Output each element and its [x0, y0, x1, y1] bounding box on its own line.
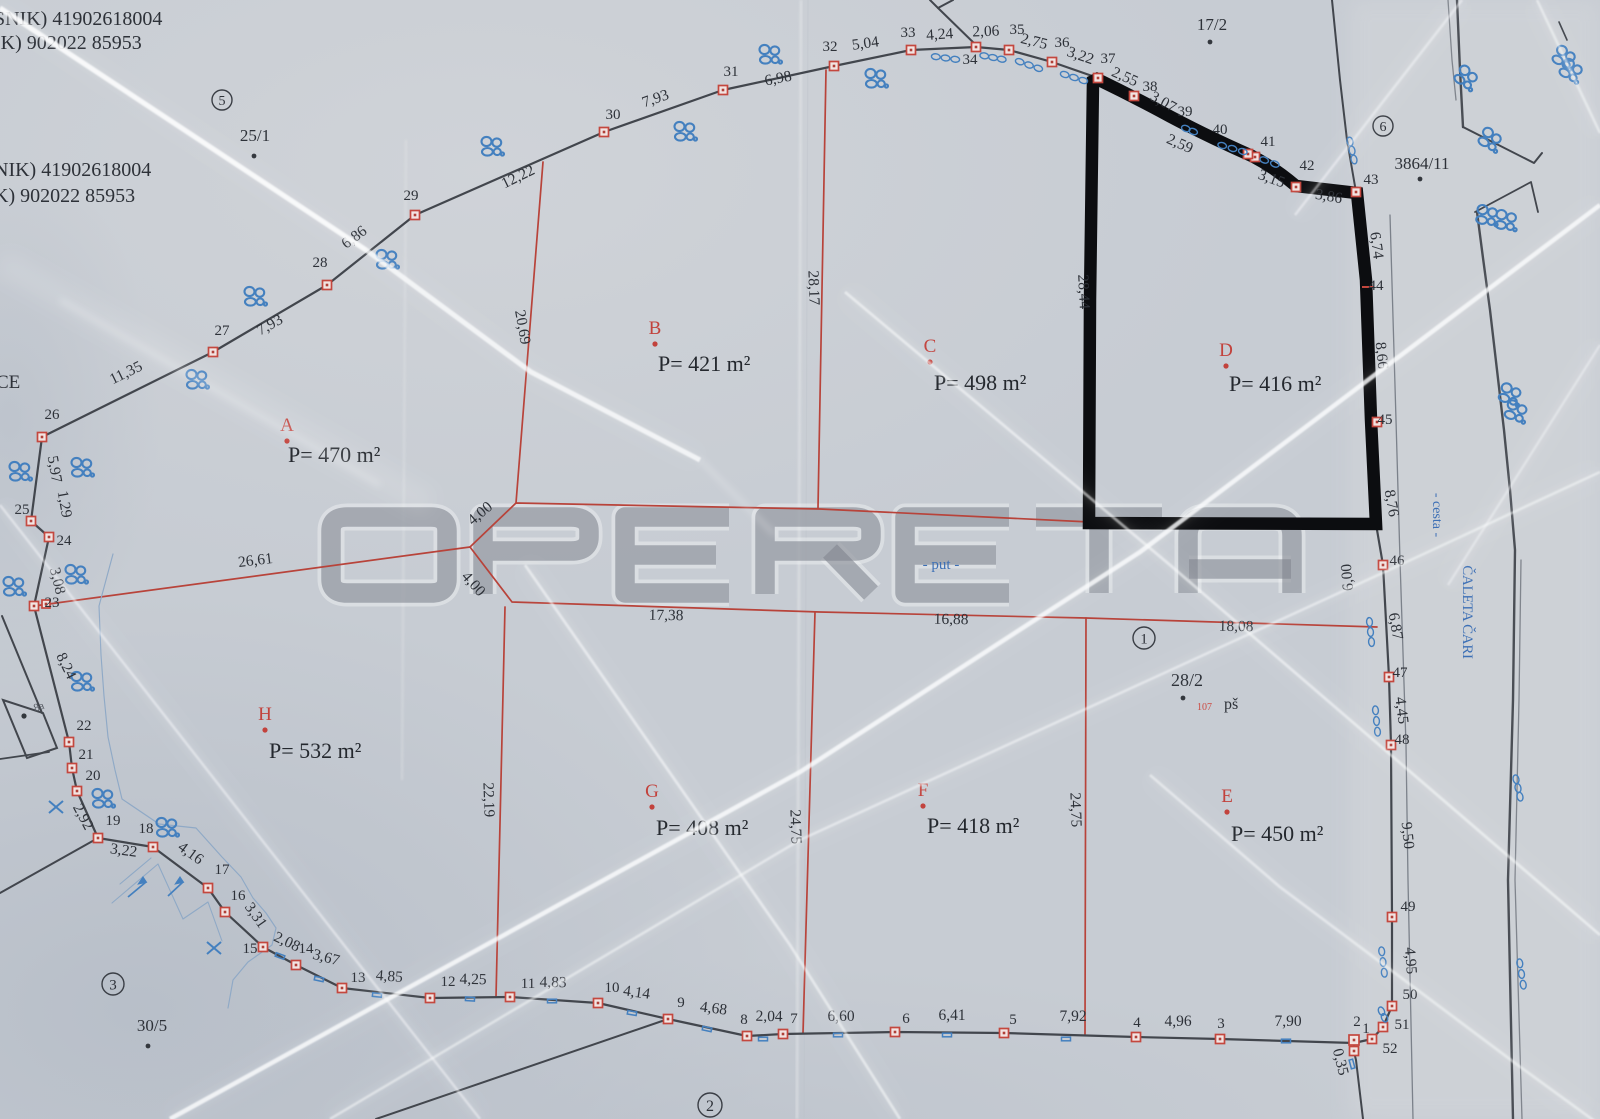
- svg-text:B: B: [649, 318, 662, 339]
- svg-text:28,44: 28,44: [1074, 274, 1093, 310]
- svg-text:23: 23: [45, 595, 60, 611]
- svg-text:1: 1: [1362, 1021, 1370, 1037]
- svg-text:4: 4: [1133, 1015, 1141, 1031]
- svg-text:G: G: [645, 781, 659, 802]
- svg-text:P= 418 m²: P= 418 m²: [927, 813, 1020, 838]
- svg-text:49: 49: [1401, 899, 1416, 915]
- svg-text:P= 532 m²: P= 532 m²: [269, 738, 362, 763]
- svg-text:28,17: 28,17: [804, 270, 822, 306]
- svg-text:21: 21: [79, 747, 94, 763]
- svg-text:1: 1: [1140, 631, 1148, 647]
- svg-text:6,41: 6,41: [938, 1007, 965, 1024]
- svg-text:43: 43: [1364, 172, 1379, 188]
- svg-text:32: 32: [823, 39, 838, 55]
- svg-text:15: 15: [243, 941, 258, 957]
- svg-text:CE: CE: [0, 372, 20, 393]
- svg-text:19: 19: [106, 813, 121, 829]
- svg-text:4,45: 4,45: [1391, 696, 1411, 725]
- svg-text:34: 34: [963, 52, 979, 68]
- svg-text:27: 27: [215, 323, 231, 339]
- svg-text:22: 22: [77, 718, 92, 734]
- svg-text:3: 3: [109, 977, 117, 993]
- svg-text:2,06: 2,06: [972, 23, 1000, 41]
- svg-text:29: 29: [404, 188, 419, 204]
- svg-text:9: 9: [677, 995, 685, 1011]
- svg-text:17,38: 17,38: [648, 607, 683, 625]
- svg-text:4,24: 4,24: [926, 25, 954, 44]
- svg-text:44: 44: [1369, 278, 1385, 294]
- svg-text:51: 51: [1395, 1017, 1410, 1033]
- svg-text:8: 8: [740, 1012, 748, 1028]
- svg-text:2: 2: [706, 1098, 714, 1115]
- svg-text:22,19: 22,19: [479, 782, 497, 818]
- svg-text:7: 7: [790, 1011, 798, 1027]
- svg-text:20: 20: [86, 768, 101, 784]
- svg-text:28: 28: [313, 255, 328, 271]
- svg-text:4,96: 4,96: [1164, 1013, 1191, 1030]
- svg-text:18: 18: [139, 821, 154, 837]
- svg-text:7,90: 7,90: [1274, 1013, 1301, 1030]
- svg-text:7,92: 7,92: [1059, 1008, 1086, 1025]
- svg-text:16: 16: [231, 888, 247, 904]
- svg-text:17: 17: [215, 862, 231, 878]
- svg-text:24: 24: [57, 533, 73, 549]
- svg-text:30: 30: [606, 107, 621, 123]
- svg-text:33: 33: [901, 25, 916, 41]
- svg-text:- put -: - put -: [923, 557, 960, 573]
- svg-text:39: 39: [1178, 104, 1193, 120]
- svg-text:4,68: 4,68: [699, 998, 728, 1018]
- svg-text:16,88: 16,88: [933, 611, 968, 629]
- svg-text:E: E: [1221, 786, 1233, 807]
- svg-text:5: 5: [219, 94, 226, 109]
- svg-text:D: D: [1219, 340, 1233, 361]
- svg-text:24,75: 24,75: [1066, 792, 1084, 828]
- svg-text:2: 2: [1353, 1014, 1361, 1030]
- svg-text:52: 52: [1383, 1041, 1398, 1057]
- svg-text:P= 416 m²: P= 416 m²: [1229, 371, 1322, 396]
- svg-text:5: 5: [1009, 1012, 1017, 1028]
- svg-text:30/5: 30/5: [137, 1016, 167, 1035]
- svg-text:31: 31: [724, 64, 739, 80]
- svg-text:107: 107: [1197, 702, 1212, 713]
- svg-text:H: H: [258, 704, 272, 725]
- svg-text:- cesta -: - cesta -: [1429, 493, 1444, 538]
- svg-text:NIK) 41902618004: NIK) 41902618004: [0, 159, 151, 181]
- svg-text:K) 902022 85953: K) 902022 85953: [0, 185, 135, 207]
- svg-text:P= 421 m²: P= 421 m²: [658, 351, 751, 376]
- svg-text:4,25: 4,25: [459, 971, 487, 988]
- svg-text:25/1: 25/1: [240, 126, 270, 145]
- svg-text:10: 10: [605, 980, 620, 996]
- svg-text:6: 6: [902, 1011, 910, 1027]
- svg-text:37: 37: [1101, 51, 1117, 67]
- svg-text:3: 3: [1217, 1016, 1225, 1032]
- svg-text:17/2: 17/2: [1197, 15, 1227, 34]
- svg-text:3864/11: 3864/11: [1394, 154, 1449, 173]
- svg-text:41: 41: [1261, 134, 1276, 150]
- svg-text:40: 40: [1213, 122, 1228, 138]
- svg-text:42: 42: [1300, 158, 1315, 174]
- svg-text:26: 26: [45, 407, 61, 423]
- svg-text:45: 45: [1378, 412, 1393, 428]
- svg-text:P= 450 m²: P= 450 m²: [1231, 821, 1324, 846]
- svg-text:2,04: 2,04: [755, 1008, 783, 1025]
- svg-text:47: 47: [1393, 665, 1409, 681]
- svg-text:9,50: 9,50: [1398, 821, 1418, 850]
- svg-text:pš: pš: [1224, 696, 1238, 713]
